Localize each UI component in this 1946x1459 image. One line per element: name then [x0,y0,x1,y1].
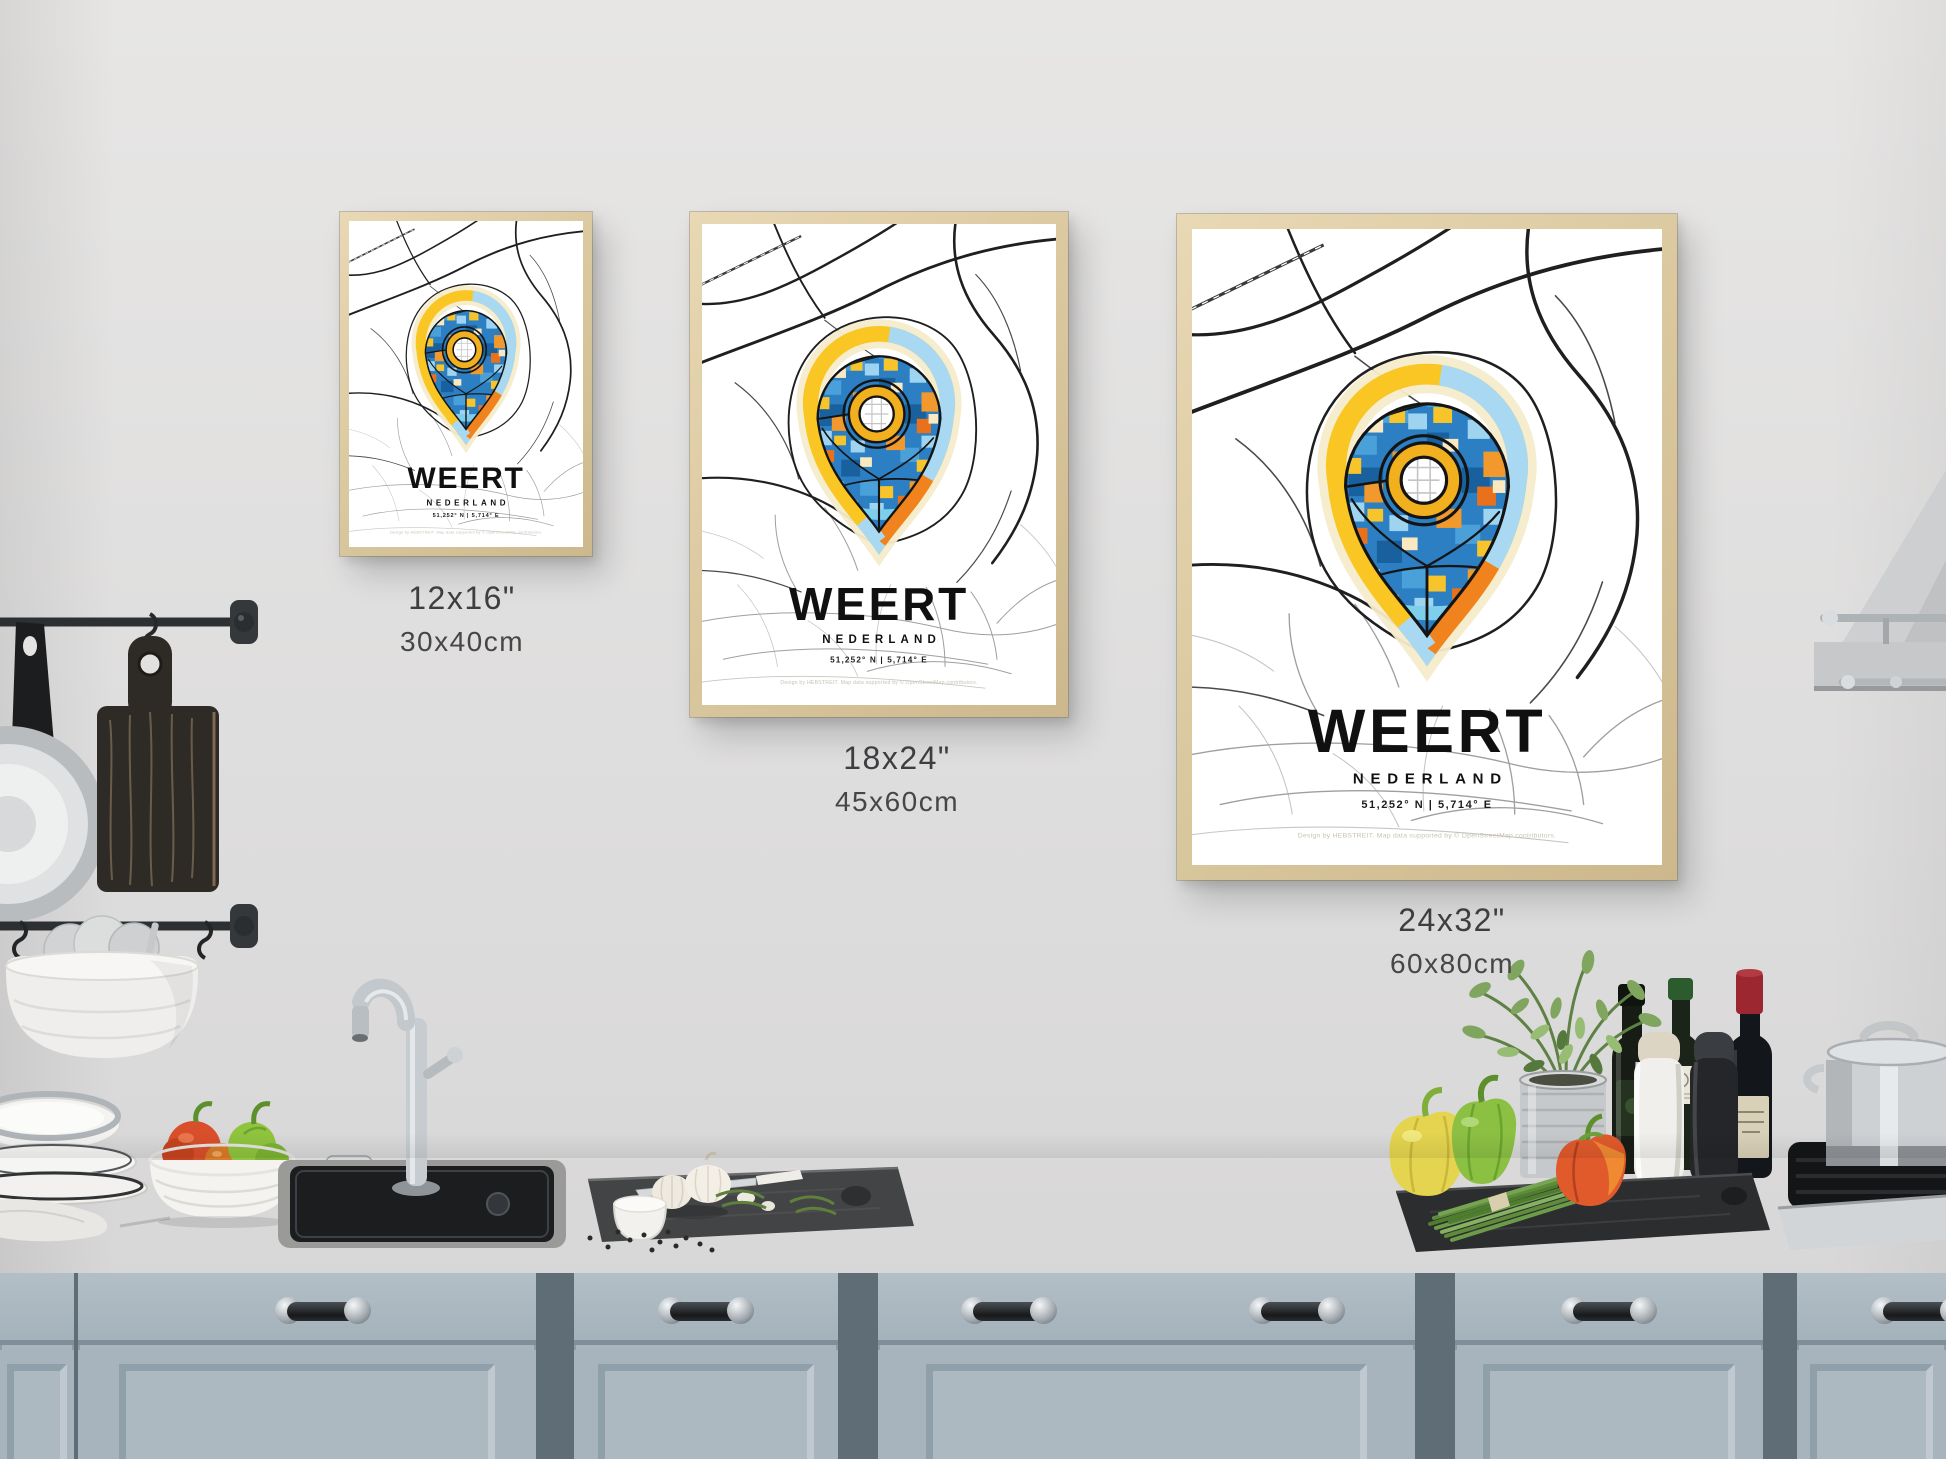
size-inches: 18x24" [727,740,1067,777]
poster-subtitle: NEDERLAND [349,498,583,507]
cabinet-door [574,1350,838,1459]
cabinet-door [878,1350,1415,1459]
handle-cap [1030,1297,1057,1324]
cabinet-door [1455,1350,1763,1459]
drawer-handle [1561,1295,1657,1327]
poster-large-print: WEERT NEDERLAND 51,252° N | 5,714° E Des… [1192,229,1662,865]
poster-medium: WEERT NEDERLAND 51,252° N | 5,714° E Des… [690,212,1068,717]
poster-subtitle: NEDERLAND [1192,770,1662,787]
poster-credit: Design by HEBSTREIT. Map data supported … [349,530,583,535]
cabinet-door [1797,1350,1946,1459]
drawer-handle [1871,1295,1946,1327]
vegetable-bowl [150,1104,294,1228]
cabinet-unit [878,1273,1415,1459]
hanging-pan [0,622,106,922]
cabinet-door-panel [598,1364,815,1459]
cabinet-door [78,1350,536,1459]
drawer-handle [961,1295,1057,1327]
pepper-grinder [1690,1032,1738,1184]
cabinet-unit [1797,1273,1946,1459]
size-inches: 12x16" [292,580,632,617]
cabinet-drawer [0,1273,74,1345]
size-label-small: 12x16" 30x40cm [292,580,632,658]
size-label-large: 24x32" 60x80cm [1282,902,1622,980]
cabinet-unit [1455,1273,1763,1459]
drawer-handle [1249,1295,1345,1327]
mortar-bowl [614,1196,666,1240]
napkin [0,1199,170,1241]
poster-large: WEERT NEDERLAND 51,252° N | 5,714° E Des… [1177,214,1677,880]
poster-small-print: WEERT NEDERLAND 51,252° N | 5,714° E Des… [349,221,583,547]
size-label-medium: 18x24" 45x60cm [727,740,1067,818]
cabinet-door-panel [926,1364,1366,1459]
cabinet-door [0,1350,74,1459]
poster-title: WEERT [702,577,1056,631]
cabinet-unit [0,1273,74,1459]
size-inches: 24x32" [1282,902,1622,939]
handle-cap [1318,1297,1345,1324]
poster-credit: Design by HEBSTREIT. Map data supported … [1192,832,1662,839]
cabinet-unit [574,1273,838,1459]
size-cm: 45x60cm [727,786,1067,818]
poster-subtitle: NEDERLAND [702,634,1056,646]
hanging-cutting-board [97,614,219,892]
drawer-handle [658,1295,754,1327]
handle-cap [727,1297,754,1324]
handle-cap [1630,1297,1657,1324]
cabinet-row [0,1273,1946,1459]
poster-small: WEERT NEDERLAND 51,252° N | 5,714° E Des… [340,212,592,556]
poster-credit: Design by HEBSTREIT. Map data supported … [702,680,1056,686]
poster-title: WEERT [349,462,583,496]
cabinet-door-panel [1810,1364,1932,1459]
handle-cap [344,1297,371,1324]
kitchen-mockup-scene: WEERT NEDERLAND 51,252° N | 5,714° E Des… [0,0,1946,1459]
bell-pepper-green [1452,1078,1516,1184]
garlic-board [588,1153,915,1252]
salt-grinder [1634,1032,1684,1184]
poster-coordinates: 51,252° N | 5,714° E [349,513,583,519]
range-hood [1814,470,1946,691]
cabinet-door-panel [119,1364,495,1459]
handle-bar [1883,1302,1946,1321]
counter-wall-shadow [0,1132,1946,1158]
poster-title: WEERT [1192,696,1662,766]
poster-coordinates: 51,252° N | 5,714° E [1192,799,1662,811]
size-cm: 30x40cm [292,626,632,658]
poster-medium-print: WEERT NEDERLAND 51,252° N | 5,714° E Des… [702,224,1056,705]
cabinet-door-panel [1483,1364,1736,1459]
poster-coordinates: 51,252° N | 5,714° E [702,655,1056,664]
cabinet-door-panel [7,1364,68,1459]
drawer-handle [275,1295,371,1327]
size-cm: 60x80cm [1282,948,1622,980]
cabinet-unit [78,1273,536,1459]
wall-bucket [6,916,198,1058]
